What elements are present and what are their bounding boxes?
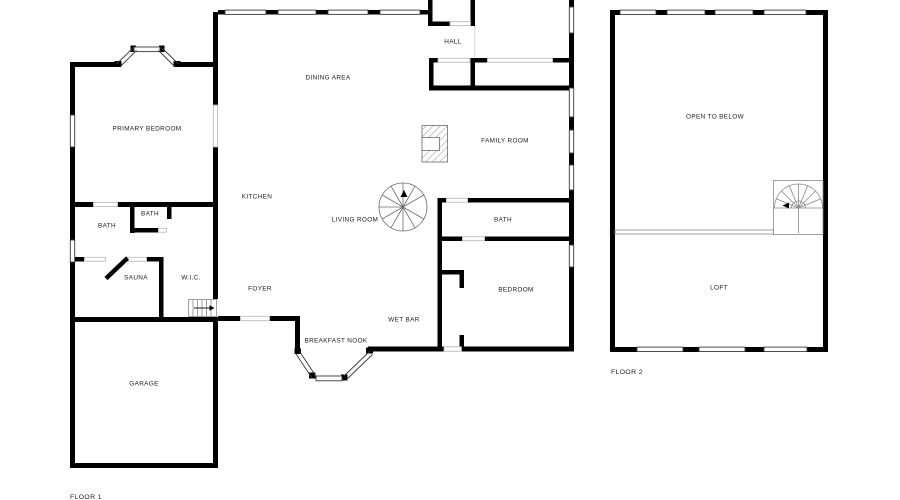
floorplan-page: PRIMARY BEDROOM DINING AREA HALL KITCHEN… <box>0 0 900 500</box>
stairs-foyer <box>189 300 217 317</box>
room-label-sauna: SAUNA <box>124 275 148 282</box>
room-label-kitchen: KITCHEN <box>242 194 273 201</box>
room-label-breakfast-nook: BREAKFAST NOOK <box>304 338 367 345</box>
floor1-walls <box>70 0 574 468</box>
room-label-bath-left: BATH <box>98 223 116 230</box>
room-label-open-to-below: OPEN TO BELOW <box>686 114 744 121</box>
fireplace <box>422 126 448 163</box>
floor2-caption: FLOOR 2 <box>611 369 643 376</box>
room-label-dining-area: DINING AREA <box>305 75 350 82</box>
loft-railing <box>615 230 774 234</box>
floor1-openings <box>85 22 553 351</box>
room-label-bath-right: BATH <box>494 217 512 224</box>
room-label-wic: W.I.C. <box>181 275 201 282</box>
room-label-loft: LOFT <box>710 285 728 292</box>
spiral-staircase-floor1 <box>379 183 427 231</box>
room-label-bath-inner: BATH <box>141 211 159 218</box>
room-label-family-room: FAMILY ROOM <box>481 138 529 145</box>
floor1-caption: FLOOR 1 <box>70 494 102 500</box>
room-label-foyer: FOYER <box>248 286 272 293</box>
room-label-living-room: LIVING ROOM <box>332 217 378 224</box>
floorplan-drawing <box>0 0 900 500</box>
floor2-walls <box>610 10 828 352</box>
bay-window-breakfast-nook <box>296 351 373 380</box>
room-label-wet-bar: WET BAR <box>388 317 419 324</box>
room-label-primary-bedroom: PRIMARY BEDROOM <box>113 126 182 133</box>
room-label-garage: GARAGE <box>129 381 158 388</box>
floor1-windows <box>70 7 573 381</box>
spiral-staircase-floor2 <box>774 181 824 235</box>
room-label-bedroom: BEDROOM <box>498 287 533 294</box>
room-label-hall: HALL <box>444 39 461 46</box>
